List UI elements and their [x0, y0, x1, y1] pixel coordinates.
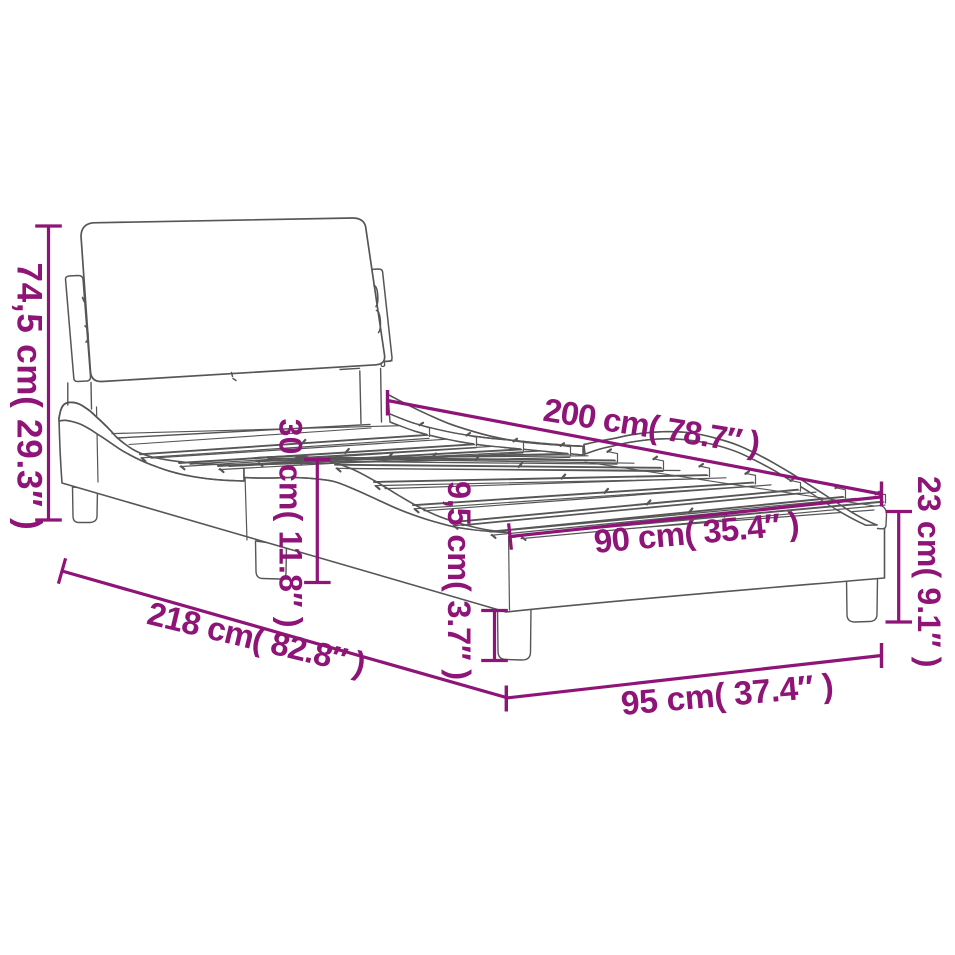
svg-text:23 cm( 9.1″ ): 23 cm( 9.1″ ): [911, 476, 947, 668]
svg-text:30 cm( 11.8″ ): 30 cm( 11.8″ ): [273, 419, 309, 628]
svg-text:9,5 cm( 3.7″ ): 9,5 cm( 3.7″ ): [441, 481, 477, 680]
svg-text:74,5 cm( 29.3″ ): 74,5 cm( 29.3″ ): [9, 263, 48, 531]
